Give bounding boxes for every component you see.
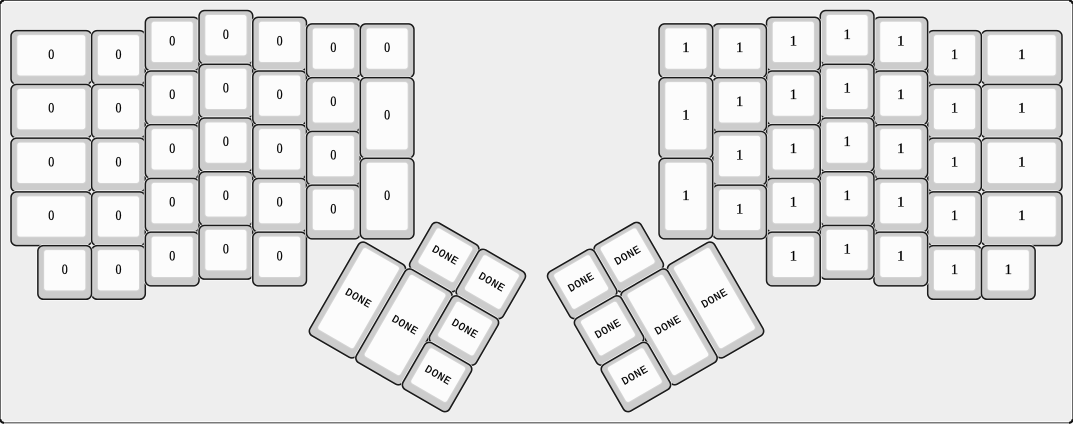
svg-text:1: 1 [790, 195, 798, 211]
svg-text:1: 1 [1018, 154, 1025, 170]
svg-text:1: 1 [951, 262, 959, 278]
svg-text:0: 0 [277, 193, 283, 210]
svg-text:1: 1 [790, 248, 798, 264]
svg-text:0: 0 [277, 86, 283, 103]
svg-text:0: 0 [223, 240, 229, 257]
svg-text:1: 1 [736, 148, 744, 164]
svg-text:1: 1 [682, 40, 690, 56]
svg-text:0: 0 [384, 187, 390, 204]
svg-text:0: 0 [223, 133, 229, 150]
svg-text:1: 1 [843, 242, 851, 258]
svg-text:0: 0 [169, 86, 175, 103]
svg-text:1: 1 [843, 134, 851, 150]
svg-text:1: 1 [897, 87, 905, 103]
svg-text:1: 1 [736, 94, 744, 110]
svg-text:1: 1 [1018, 208, 1025, 224]
svg-text:1: 1 [951, 208, 959, 224]
svg-text:0: 0 [330, 200, 336, 217]
svg-text:1: 1 [951, 154, 959, 170]
svg-text:0: 0 [330, 39, 336, 56]
svg-text:1: 1 [897, 141, 905, 157]
svg-text:1: 1 [897, 195, 905, 211]
svg-text:0: 0 [115, 99, 121, 116]
svg-text:0: 0 [223, 79, 229, 96]
svg-text:1: 1 [897, 33, 905, 49]
svg-text:0: 0 [384, 39, 390, 56]
svg-text:0: 0 [330, 146, 336, 163]
svg-text:0: 0 [277, 32, 283, 49]
svg-text:0: 0 [169, 247, 175, 264]
svg-text:0: 0 [330, 93, 336, 110]
svg-text:1: 1 [1018, 101, 1025, 117]
svg-text:1: 1 [736, 201, 744, 217]
svg-text:1: 1 [1005, 262, 1013, 278]
svg-text:0: 0 [223, 26, 229, 43]
svg-text:0: 0 [115, 46, 121, 63]
svg-text:1: 1 [843, 188, 851, 204]
svg-text:1: 1 [736, 40, 744, 56]
svg-text:1: 1 [951, 47, 959, 63]
svg-text:0: 0 [115, 261, 121, 278]
svg-text:1: 1 [790, 87, 798, 103]
svg-text:0: 0 [169, 193, 175, 210]
svg-text:0: 0 [277, 247, 283, 264]
svg-text:0: 0 [48, 99, 54, 116]
svg-text:0: 0 [115, 207, 121, 224]
svg-text:0: 0 [62, 261, 68, 278]
svg-text:1: 1 [843, 27, 851, 43]
svg-text:0: 0 [223, 187, 229, 204]
svg-text:0: 0 [115, 153, 121, 170]
svg-text:1: 1 [1018, 47, 1025, 63]
svg-text:1: 1 [843, 80, 851, 96]
svg-text:1: 1 [790, 141, 798, 157]
svg-text:0: 0 [48, 46, 54, 63]
svg-text:1: 1 [790, 33, 798, 49]
svg-text:1: 1 [682, 188, 690, 204]
svg-text:0: 0 [277, 140, 283, 157]
svg-text:0: 0 [384, 106, 390, 123]
svg-text:1: 1 [897, 248, 905, 264]
svg-text:0: 0 [169, 140, 175, 157]
svg-text:0: 0 [169, 32, 175, 49]
svg-text:0: 0 [48, 207, 54, 224]
svg-text:0: 0 [48, 153, 54, 170]
svg-text:1: 1 [951, 101, 959, 117]
svg-text:1: 1 [682, 107, 690, 123]
